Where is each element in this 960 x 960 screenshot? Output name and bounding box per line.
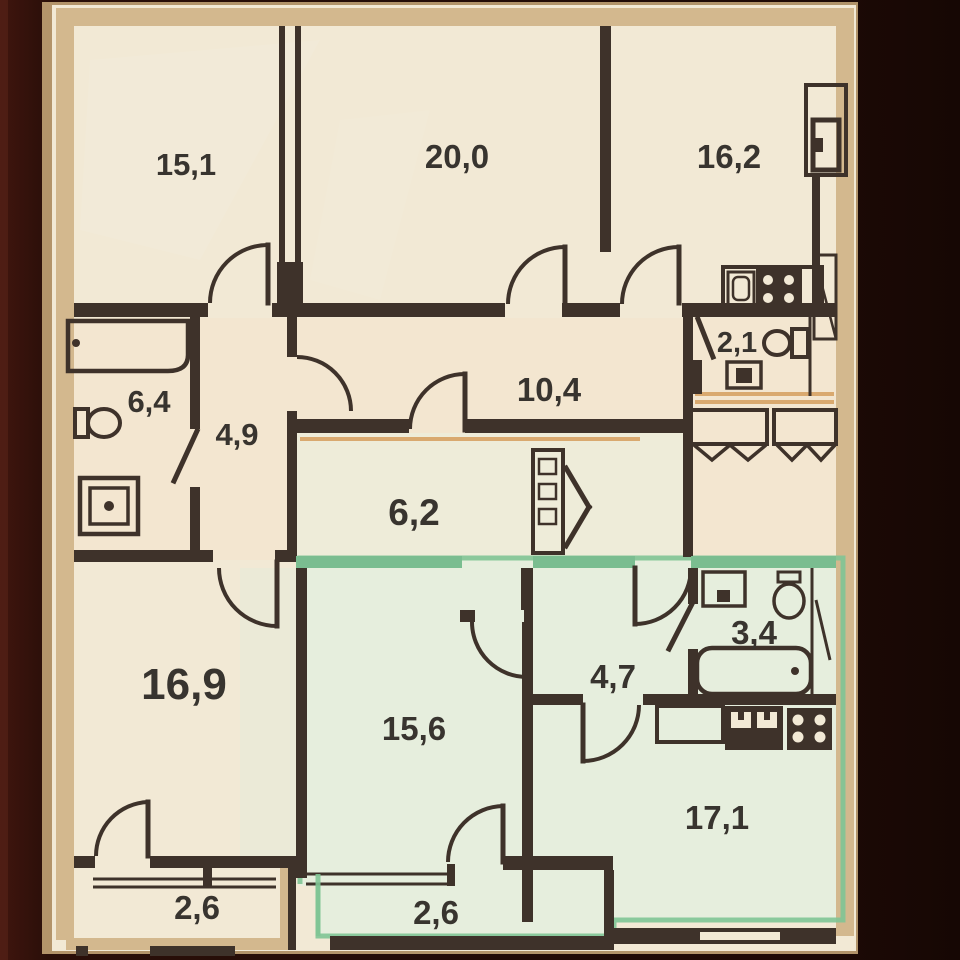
label-room-17-1: 17,1 <box>685 799 749 836</box>
label-balcony-mid: 2,6 <box>413 894 459 931</box>
label-room-16-2: 16,2 <box>697 138 761 175</box>
label-room-15-1: 15,1 <box>156 147 216 182</box>
stove-bottom-icon <box>787 708 832 750</box>
label-room-4-9: 4,9 <box>215 417 258 452</box>
label-room-16-9: 16,9 <box>141 660 227 709</box>
label-room-20-0: 20,0 <box>425 138 489 175</box>
label-room-15-6: 15,6 <box>382 710 446 747</box>
washing-machine-icon <box>80 478 138 534</box>
label-room-3-4: 3,4 <box>731 614 778 651</box>
label-room-2-1: 2,1 <box>717 327 757 359</box>
label-balcony-left: 2,6 <box>174 889 220 926</box>
floor-plan-svg: 15,1 20,0 16,2 6,4 4,9 10,4 2,1 6,2 16,9… <box>0 0 960 960</box>
label-room-6-2: 6,2 <box>388 492 439 533</box>
label-room-4-7: 4,7 <box>590 658 636 695</box>
photo-edge-glow <box>0 0 8 960</box>
bottom-wall-17-1 <box>614 928 836 944</box>
floor-plan-photo: 15,1 20,0 16,2 6,4 4,9 10,4 2,1 6,2 16,9… <box>0 0 960 960</box>
label-room-6-4: 6,4 <box>127 384 171 419</box>
label-room-10-4: 10,4 <box>517 371 582 408</box>
stove-top-icon <box>756 269 802 310</box>
sink-bottom-icon <box>725 706 783 750</box>
